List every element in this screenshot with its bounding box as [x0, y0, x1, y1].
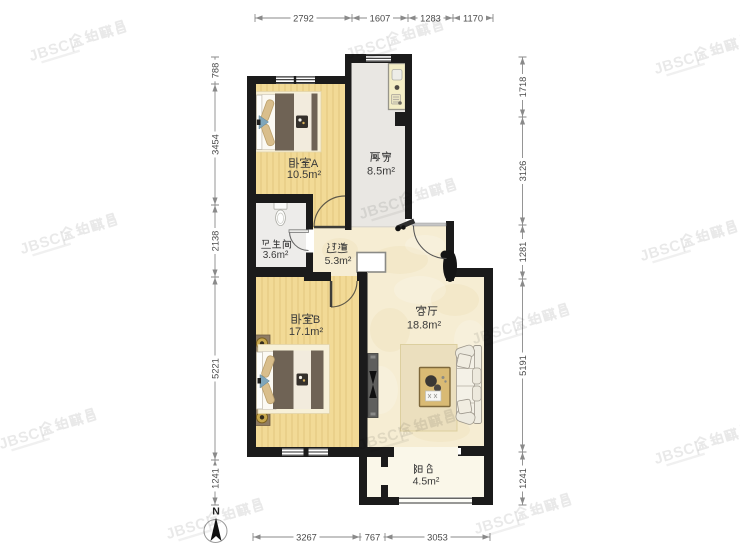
- svg-text:3267: 3267: [296, 532, 317, 542]
- svg-text:10.5m²: 10.5m²: [287, 169, 322, 181]
- svg-text:3.6m²: 3.6m²: [263, 250, 289, 261]
- svg-text:1241: 1241: [518, 468, 528, 489]
- svg-text:18.8m²: 18.8m²: [407, 319, 442, 331]
- svg-text:N: N: [212, 506, 220, 518]
- svg-text:B: B: [313, 314, 320, 326]
- svg-text:1718: 1718: [518, 77, 528, 98]
- svg-text:3454: 3454: [210, 134, 220, 155]
- svg-text:4.5m²: 4.5m²: [413, 475, 440, 487]
- svg-text:5191: 5191: [518, 355, 528, 376]
- svg-text:8.5m²: 8.5m²: [367, 166, 395, 178]
- svg-text:1281: 1281: [518, 242, 528, 263]
- svg-text:767: 767: [365, 532, 381, 542]
- svg-text:3126: 3126: [518, 161, 528, 182]
- svg-text:3053: 3053: [427, 532, 448, 542]
- svg-text:2792: 2792: [293, 13, 314, 23]
- svg-text:1241: 1241: [210, 468, 220, 489]
- svg-text:1170: 1170: [463, 13, 483, 23]
- svg-text:788: 788: [210, 63, 220, 79]
- svg-text:2138: 2138: [210, 231, 220, 252]
- svg-text:1607: 1607: [370, 13, 391, 23]
- svg-text:17.1m²: 17.1m²: [289, 326, 324, 338]
- svg-text:5221: 5221: [210, 358, 220, 379]
- svg-text:5.3m²: 5.3m²: [325, 255, 352, 267]
